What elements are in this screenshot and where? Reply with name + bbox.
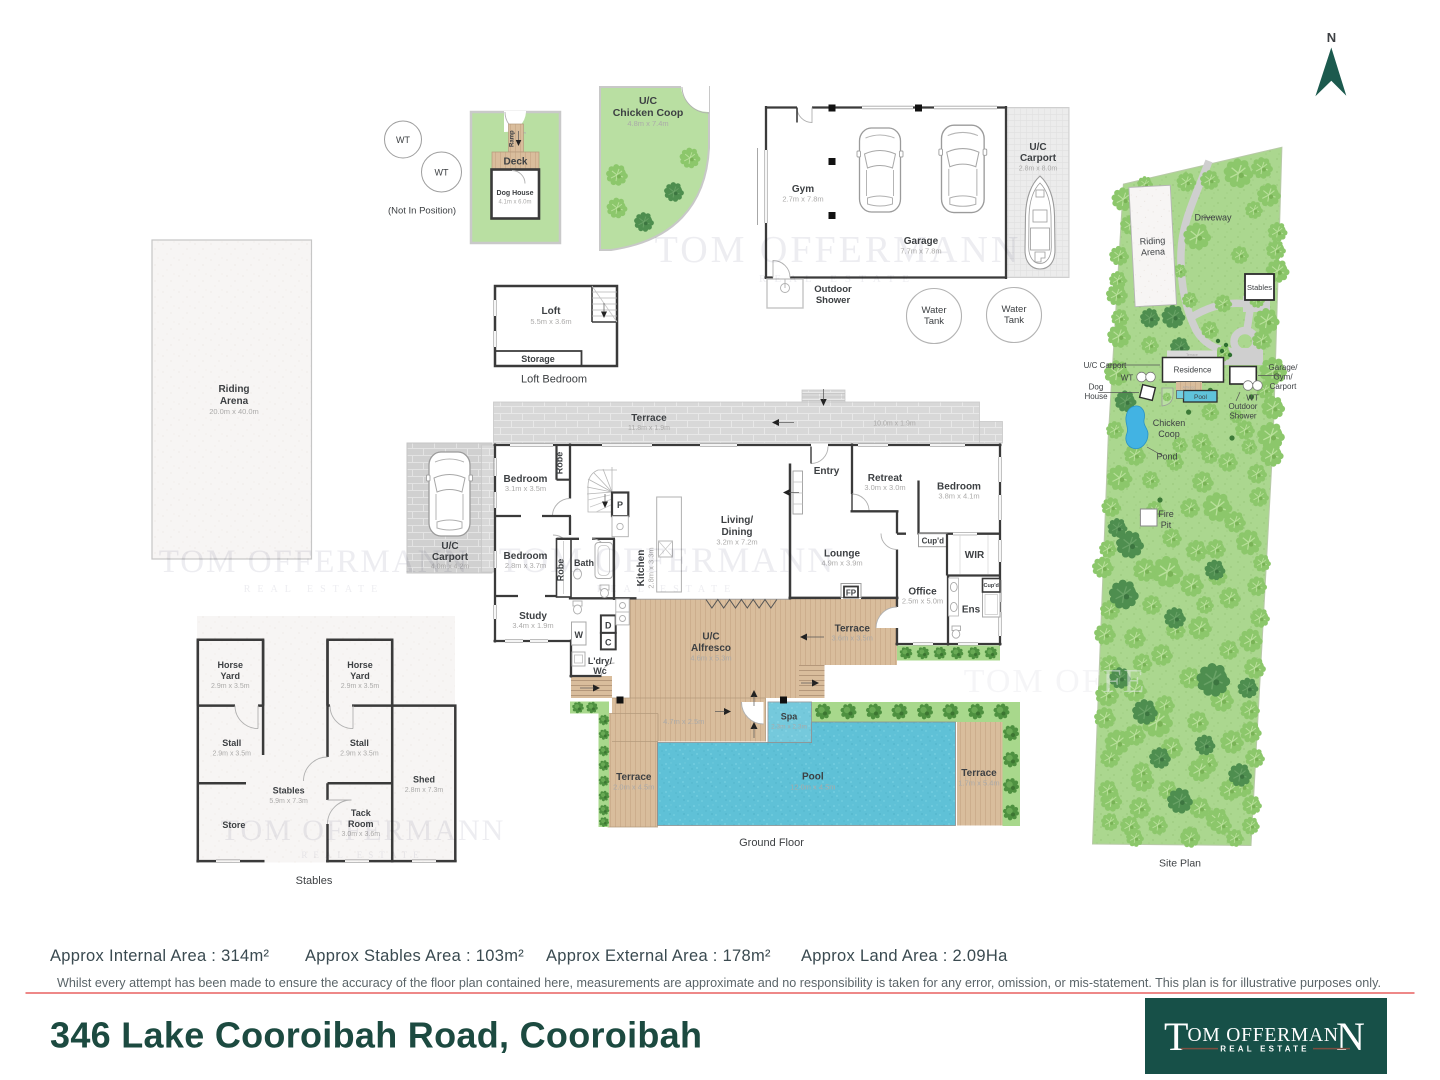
svg-text:TOM OFFERMANN: TOM OFFERMANN	[499, 540, 835, 580]
svg-text:TOM OFFERMANN: TOM OFFERMANN	[159, 544, 470, 580]
svg-text:WT: WT	[1121, 374, 1134, 383]
svg-text:Stall: Stall	[350, 738, 369, 748]
svg-text:Approx Land Area : 2.09Ha: Approx Land Area : 2.09Ha	[801, 947, 1008, 965]
svg-text:20.0m x 40.0m: 20.0m x 40.0m	[209, 407, 259, 416]
svg-text:Residence: Residence	[1174, 366, 1212, 375]
svg-text:T: T	[1164, 1014, 1188, 1059]
svg-text:Living/: Living/	[721, 515, 753, 526]
svg-text:OM OFFERMAN: OM OFFERMAN	[1188, 1025, 1339, 1046]
svg-text:TOM OFFERMANN: TOM OFFERMANN	[655, 229, 1022, 271]
svg-text:Ground Floor: Ground Floor	[739, 837, 804, 849]
svg-text:Spa: Spa	[781, 712, 799, 722]
svg-text:REAL ESTATE: REAL ESTATE	[1220, 1045, 1309, 1054]
svg-text:Yard: Yard	[350, 671, 370, 681]
svg-text:3.0m x 3.0m: 3.0m x 3.0m	[864, 483, 905, 492]
svg-text:Coop: Coop	[1158, 429, 1180, 439]
svg-text:2.9m x 3.5m: 2.9m x 3.5m	[340, 751, 379, 758]
svg-text:Driveway: Driveway	[1194, 213, 1232, 223]
svg-text:10.0m x 1.9m: 10.0m x 1.9m	[873, 421, 916, 428]
svg-text:Cup'd: Cup'd	[922, 537, 944, 546]
svg-text:Deck: Deck	[504, 157, 528, 168]
svg-text:4.1m x 6.0m: 4.1m x 6.0m	[498, 200, 531, 206]
svg-text:C: C	[605, 638, 612, 648]
svg-text:Outdoor: Outdoor	[1229, 402, 1258, 411]
svg-text:Tank: Tank	[924, 316, 944, 327]
svg-text:3.4m x 1.9m: 3.4m x 1.9m	[512, 621, 553, 630]
svg-text:Horse: Horse	[218, 660, 244, 670]
svg-text:5.5m x 3.6m: 5.5m x 3.6m	[530, 317, 571, 326]
svg-text:Entry: Entry	[814, 466, 840, 477]
svg-text:Terrace: Terrace	[961, 768, 997, 779]
svg-text:Wc: Wc	[593, 666, 607, 676]
svg-text:Pool: Pool	[1194, 394, 1208, 401]
svg-text:Carport: Carport	[1270, 382, 1297, 391]
svg-text:Shed: Shed	[413, 775, 435, 785]
svg-text:1.7m x 5.4m: 1.7m x 5.4m	[958, 779, 999, 788]
svg-text:Pond: Pond	[1156, 452, 1177, 462]
svg-text:Shower: Shower	[1229, 412, 1256, 421]
svg-text:House: House	[1084, 392, 1108, 401]
svg-text:REAL ESTATE: REAL ESTATE	[244, 584, 385, 595]
svg-text:2.3m x 2.3m: 2.3m x 2.3m	[771, 724, 807, 731]
svg-text:2.8m x 8.0m: 2.8m x 8.0m	[1019, 166, 1058, 173]
svg-text:Arena: Arena	[220, 396, 249, 407]
svg-text:Gym/: Gym/	[1273, 373, 1293, 382]
svg-text:REAL ESTATE: REAL ESTATE	[597, 584, 738, 595]
svg-text:WT: WT	[396, 135, 410, 145]
svg-text:REAL ESTATE: REAL ESTATE	[759, 273, 917, 285]
svg-text:Pit: Pit	[1161, 520, 1172, 530]
svg-text:Alfresco: Alfresco	[1183, 386, 1196, 390]
svg-text:Loft Bedroom: Loft Bedroom	[521, 374, 587, 386]
svg-text:Horse: Horse	[347, 660, 373, 670]
svg-text:(Not In Position): (Not In Position)	[388, 206, 456, 217]
svg-text:TOM OFFE: TOM OFFE	[964, 663, 1147, 700]
svg-text:Dog House: Dog House	[497, 190, 534, 197]
svg-text:Loft: Loft	[542, 306, 562, 317]
svg-text:TOM OFFERMANN: TOM OFFERMANN	[221, 814, 506, 847]
svg-text:3.1m x 3.5m: 3.1m x 3.5m	[505, 484, 546, 493]
svg-text:3.8m x 4.1m: 3.8m x 4.1m	[938, 492, 979, 501]
svg-text:Terrace: Terrace	[631, 413, 667, 424]
svg-text:4.7m x 2.5m: 4.7m x 2.5m	[663, 717, 704, 726]
svg-text:Site Plan: Site Plan	[1159, 858, 1201, 870]
svg-text:WT: WT	[435, 168, 449, 178]
svg-text:Shower: Shower	[816, 295, 851, 306]
svg-text:Riding: Riding	[218, 384, 249, 395]
svg-text:12.0m x 4.5m: 12.0m x 4.5m	[790, 783, 835, 792]
svg-text:4.8m x 7.4m: 4.8m x 7.4m	[627, 119, 668, 128]
svg-text:Riding: Riding	[1139, 235, 1165, 246]
svg-text:Whilst every attempt has been: Whilst every attempt has been made to en…	[57, 976, 1381, 990]
svg-text:Garage/: Garage/	[1269, 363, 1299, 372]
svg-text:Water: Water	[1002, 304, 1027, 315]
svg-text:2.9m x 3.5m: 2.9m x 3.5m	[341, 683, 380, 690]
svg-text:Terrace: Terrace	[616, 772, 652, 783]
svg-text:Dining: Dining	[721, 527, 752, 538]
svg-text:Dog: Dog	[1089, 383, 1104, 392]
svg-text:Stables: Stables	[296, 875, 333, 887]
svg-text:Stables: Stables	[1247, 283, 1272, 292]
svg-text:2.5m x 5.0m: 2.5m x 5.0m	[902, 597, 943, 606]
svg-text:Gym: Gym	[792, 184, 814, 195]
svg-text:Water: Water	[922, 305, 947, 316]
svg-text:Approx Internal Area : 314m²: Approx Internal Area : 314m²	[50, 947, 270, 965]
svg-text:Approx External Area : 178m²: Approx External Area : 178m²	[546, 947, 771, 965]
svg-text:2.9m x 3.5m: 2.9m x 3.5m	[212, 751, 251, 758]
svg-text:Alfresco: Alfresco	[691, 643, 731, 654]
svg-text:W: W	[574, 630, 583, 640]
svg-text:P: P	[617, 500, 623, 510]
svg-text:2.9m x 3.5m: 2.9m x 3.5m	[211, 683, 250, 690]
svg-text:5.9m x 7.3m: 5.9m x 7.3m	[269, 798, 308, 805]
svg-text:Outdoor: Outdoor	[814, 284, 852, 295]
svg-text:Stall: Stall	[222, 738, 241, 748]
svg-text:U/C: U/C	[639, 95, 658, 107]
svg-text:Arena: Arena	[1141, 246, 1166, 257]
svg-text:346 Lake Cooroibah Road, Cooro: 346 Lake Cooroibah Road, Cooroibah	[50, 1015, 702, 1056]
svg-text:Pool: Pool	[802, 772, 824, 783]
svg-text:11.8m x 1.9m: 11.8m x 1.9m	[628, 425, 670, 432]
svg-text:D: D	[605, 621, 612, 631]
svg-text:Stables: Stables	[273, 786, 305, 796]
svg-text:Robe: Robe	[555, 452, 565, 475]
svg-text:2.7m x 7.8m: 2.7m x 7.8m	[782, 195, 823, 204]
svg-text:U/C: U/C	[1029, 142, 1046, 153]
svg-text:L'dry/: L'dry/	[588, 656, 613, 666]
svg-text:Ens: Ens	[962, 605, 981, 616]
svg-text:Carport: Carport	[1020, 153, 1057, 164]
svg-text:2.8m x 7.3m: 2.8m x 7.3m	[405, 787, 444, 794]
svg-text:Yard: Yard	[221, 671, 241, 681]
svg-text:Chicken: Chicken	[1153, 418, 1186, 428]
svg-text:2.0m x 4.5m: 2.0m x 4.5m	[613, 783, 654, 792]
svg-text:Storage: Storage	[521, 354, 555, 364]
svg-text:Ramp: Ramp	[510, 130, 516, 147]
svg-text:U/C: U/C	[702, 632, 719, 643]
svg-text:Chicken Coop: Chicken Coop	[613, 107, 684, 119]
svg-text:REAL ESTATE: REAL ESTATE	[301, 850, 424, 860]
svg-text:Tank: Tank	[1004, 315, 1024, 326]
svg-text:WIR: WIR	[965, 550, 985, 561]
svg-text:Approx Stables Area : 103m²: Approx Stables Area : 103m²	[305, 947, 524, 965]
svg-text:FP: FP	[846, 589, 857, 598]
svg-text:N: N	[1336, 1014, 1365, 1059]
svg-text:N: N	[1327, 30, 1336, 45]
svg-text:U/C Carport: U/C Carport	[1084, 361, 1127, 370]
svg-text:3.6m x 3.5m: 3.6m x 3.5m	[832, 634, 873, 643]
svg-text:4.6m x 5.3m: 4.6m x 5.3m	[690, 654, 731, 663]
svg-text:Terrace: Terrace	[1186, 353, 1198, 357]
svg-text:Cup'd: Cup'd	[984, 583, 999, 589]
